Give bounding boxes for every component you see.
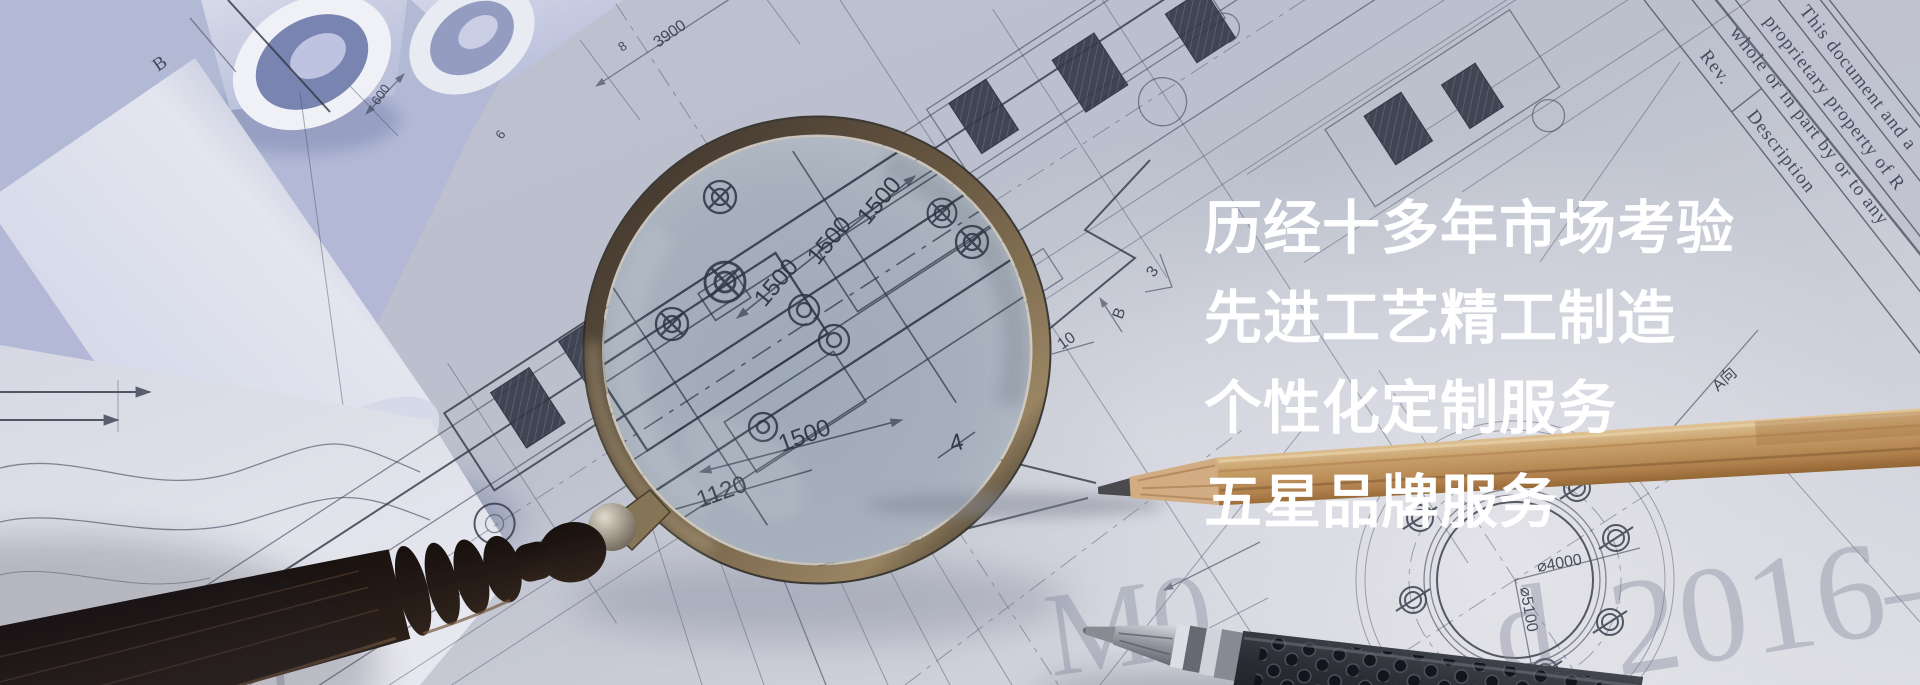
hero-banner: B [0, 0, 1920, 685]
headline-line-2: 先进工艺精工制造 [1204, 274, 1735, 364]
headline-line-3: 个性化定制服务 [1204, 364, 1735, 454]
headline-line-4: 五星品牌服务 [1204, 458, 1735, 548]
headline: 历经十多年市场考验 先进工艺精工制造 个性化定制服务 五星品牌服务 [1204, 184, 1735, 548]
headline-line-1: 历经十多年市场考验 [1204, 184, 1735, 274]
